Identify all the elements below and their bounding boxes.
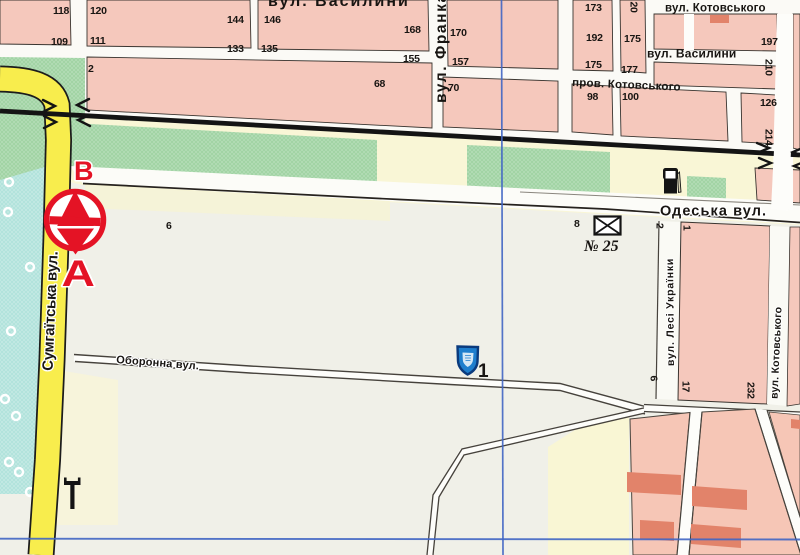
svg-text:214: 214 <box>763 129 775 146</box>
svg-text:192: 192 <box>586 32 603 44</box>
svg-text:210: 210 <box>763 59 775 76</box>
svg-text:20: 20 <box>628 2 640 14</box>
svg-text:155: 155 <box>403 53 420 65</box>
svg-text:В: В <box>74 156 94 186</box>
svg-text:175: 175 <box>624 33 641 45</box>
svg-text:вул. Василини: вул. Василини <box>647 47 737 61</box>
svg-text:№ 25: № 25 <box>583 238 619 255</box>
svg-text:2: 2 <box>88 63 94 75</box>
svg-text:120: 120 <box>90 5 107 17</box>
svg-text:232: 232 <box>745 382 757 399</box>
svg-text:8: 8 <box>574 218 580 230</box>
svg-text:100: 100 <box>622 91 639 103</box>
svg-text:126: 126 <box>760 97 777 109</box>
svg-text:173: 173 <box>585 2 602 14</box>
svg-text:197: 197 <box>761 36 778 48</box>
svg-text:вул. Котовського: вул. Котовського <box>665 3 766 15</box>
svg-text:118: 118 <box>53 5 69 17</box>
svg-text:68: 68 <box>374 78 386 90</box>
svg-text:133: 133 <box>227 43 244 55</box>
svg-text:2: 2 <box>654 223 666 229</box>
svg-text:вул. Лесі Українки: вул. Лесі Українки <box>664 258 677 366</box>
svg-text:вул. Франка: вул. Франка <box>433 0 450 103</box>
svg-text:6: 6 <box>166 220 172 232</box>
svg-text:111: 111 <box>90 35 106 47</box>
svg-text:170: 170 <box>450 27 467 39</box>
svg-text:Одеська вул.: Одеська вул. <box>660 204 767 220</box>
svg-text:168: 168 <box>404 24 421 36</box>
svg-text:1: 1 <box>478 361 489 382</box>
svg-text:98: 98 <box>587 91 599 103</box>
svg-text:135: 135 <box>261 43 278 55</box>
svg-text:157: 157 <box>452 56 469 68</box>
svg-text:144: 144 <box>227 14 244 26</box>
svg-text:А: А <box>62 252 95 294</box>
svg-text:146: 146 <box>264 14 281 26</box>
svg-text:175: 175 <box>585 59 602 71</box>
svg-text:109: 109 <box>51 36 68 48</box>
svg-text:177: 177 <box>621 64 638 76</box>
svg-text:17: 17 <box>680 381 692 393</box>
svg-text:1: 1 <box>681 225 693 231</box>
svg-text:вул. Василини: вул. Василини <box>268 0 410 10</box>
svg-text:6: 6 <box>648 376 660 382</box>
